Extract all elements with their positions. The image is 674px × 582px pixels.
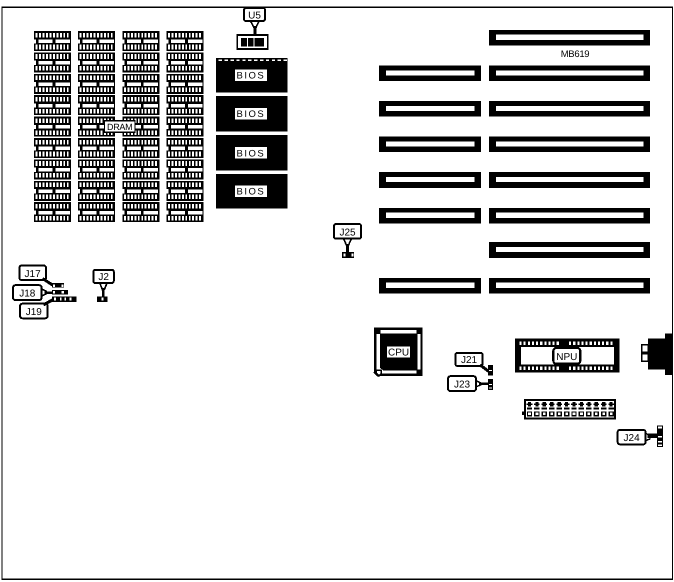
svg-text:J23: J23 xyxy=(454,380,471,391)
svg-text:J2: J2 xyxy=(98,272,109,283)
svg-text:J21: J21 xyxy=(461,355,478,366)
svg-text:U5: U5 xyxy=(248,10,261,21)
svg-text:NPU: NPU xyxy=(556,352,577,363)
svg-text:BIOS: BIOS xyxy=(237,109,266,120)
svg-text:CPU: CPU xyxy=(388,348,409,359)
svg-text:J25: J25 xyxy=(339,227,356,238)
svg-text:BIOS: BIOS xyxy=(237,148,266,159)
svg-text:MB619: MB619 xyxy=(561,49,590,60)
svg-text:J18: J18 xyxy=(19,289,36,300)
svg-text:J17: J17 xyxy=(25,269,42,280)
svg-text:BIOS: BIOS xyxy=(237,71,266,82)
svg-text:J19: J19 xyxy=(26,307,43,318)
svg-text:DRAM: DRAM xyxy=(107,122,132,132)
svg-text:J24: J24 xyxy=(624,433,641,444)
svg-text:BIOS: BIOS xyxy=(237,187,266,198)
